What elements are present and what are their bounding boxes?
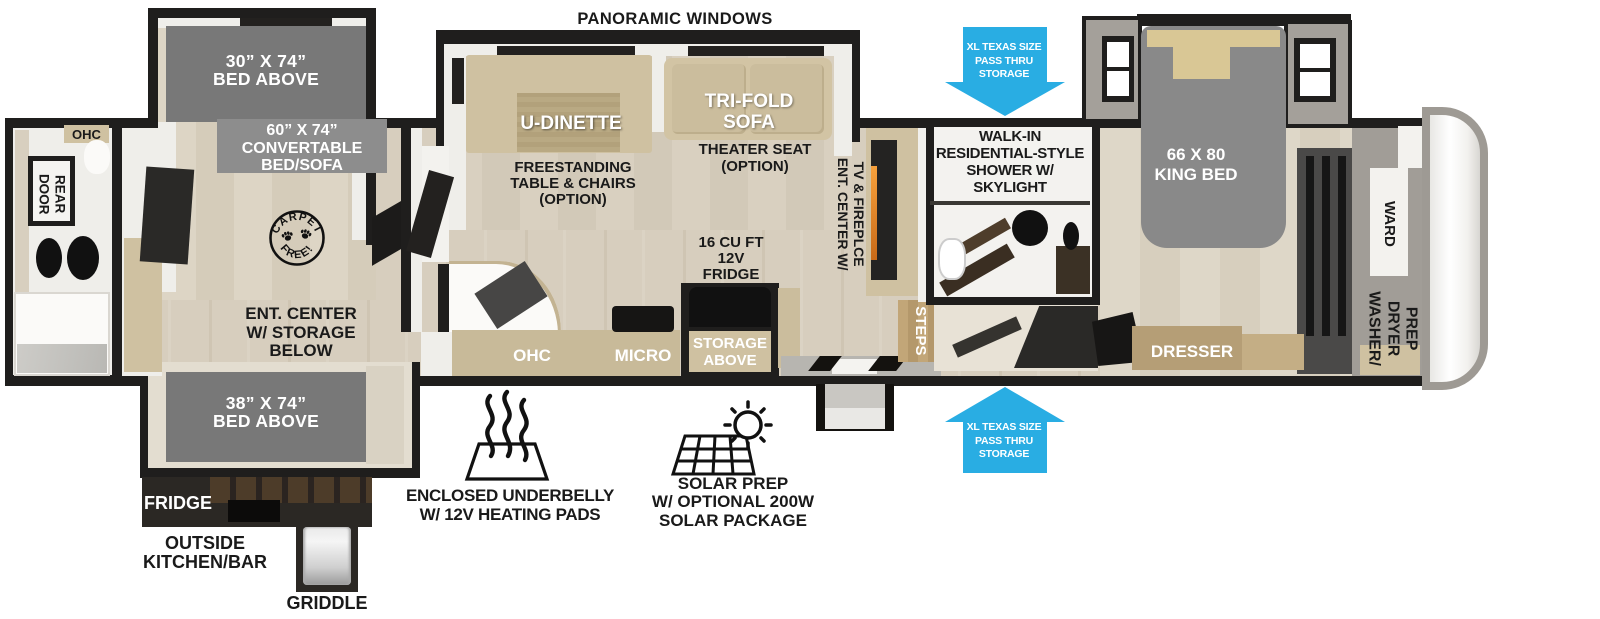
svg-text:FREE!: FREE! (278, 242, 317, 261)
svg-text:CARPET: CARPET (269, 211, 324, 236)
